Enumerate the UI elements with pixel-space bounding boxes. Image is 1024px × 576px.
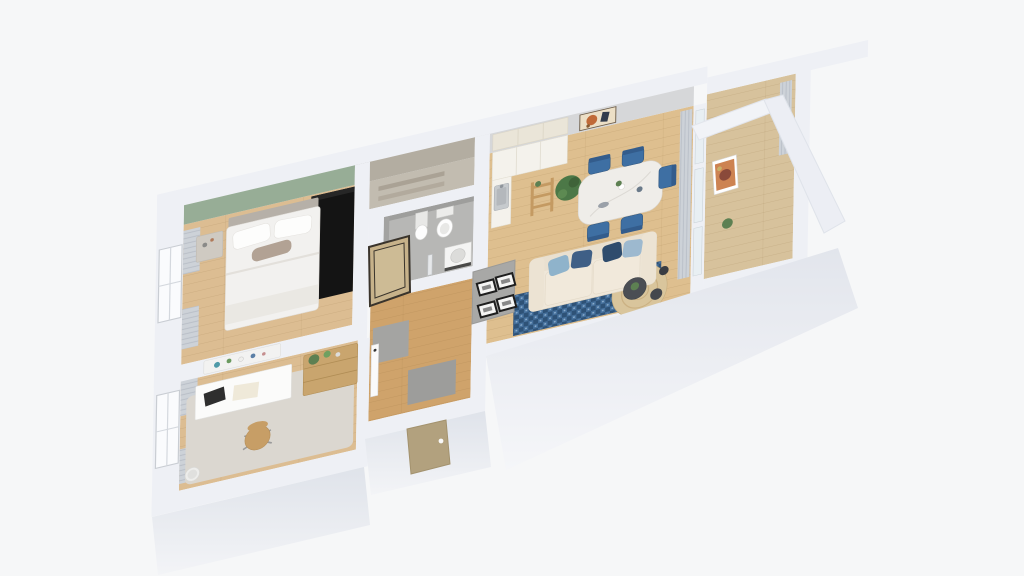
glass-pane[interactable]	[694, 168, 703, 223]
bedroom-window[interactable]	[158, 245, 182, 323]
sofa-armrest	[641, 230, 657, 286]
office-door-open[interactable]	[371, 344, 379, 397]
towel-radiator	[428, 254, 433, 275]
sofa-armrest	[529, 257, 545, 313]
balcony-door-glass[interactable]	[693, 226, 702, 276]
balcony-artwork[interactable]	[712, 155, 738, 195]
door-handle	[439, 439, 444, 444]
bedroom-curtain	[181, 305, 199, 349]
entrance-door[interactable]	[407, 420, 450, 474]
wall-bedroom-east	[352, 162, 370, 325]
floorplan-render	[0, 0, 1024, 576]
kitchen-sink[interactable]	[494, 183, 509, 211]
office-window[interactable]	[155, 390, 179, 468]
bed[interactable]	[225, 197, 321, 331]
